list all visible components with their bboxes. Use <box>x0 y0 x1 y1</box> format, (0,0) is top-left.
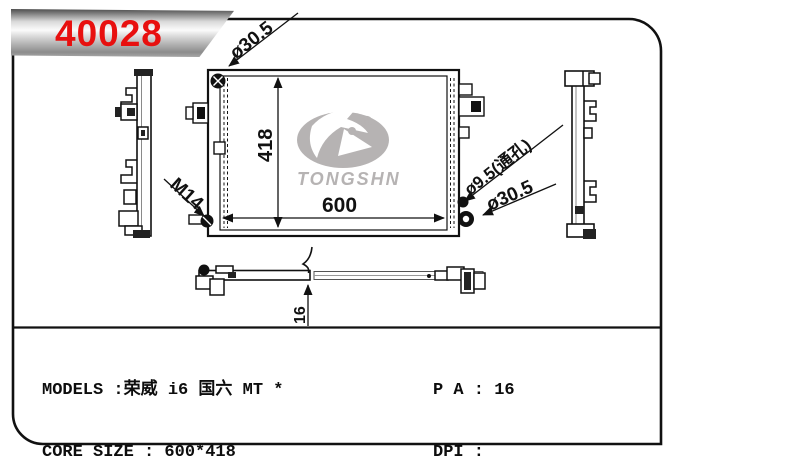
brand-name: TONGSHN <box>297 169 401 189</box>
registered-mark: ® <box>361 114 373 131</box>
top-down-view <box>196 247 485 295</box>
dim-core-height: 418 <box>255 129 277 162</box>
spec-core-size: CORE SIZE : 600*418 <box>42 441 283 463</box>
mount-hole <box>458 197 469 208</box>
side-view-right <box>565 71 600 239</box>
right-brackets <box>459 84 484 138</box>
drain-plug <box>189 215 214 228</box>
outlet-pipe <box>458 211 474 227</box>
part-number-banner: 40028 <box>11 9 234 57</box>
dim-filler-diameter: ø30.5 <box>226 17 278 64</box>
spec-models: MODELS :荣威 i6 国六 MT * <box>42 379 283 403</box>
catalog-page: ® TONGSHN <box>0 0 808 463</box>
dim-drain-thread: M14 <box>166 174 208 215</box>
spec-pa: P A : 16 <box>433 379 566 403</box>
filler-neck <box>211 74 226 89</box>
dim-core-width: 600 <box>322 194 357 217</box>
side-view-left <box>115 69 153 238</box>
spec-dpi: DPI : <box>433 441 566 463</box>
dim-core-thickness: 16 <box>292 306 309 324</box>
spec-block-left: MODELS :荣威 i6 国六 MT * CORE SIZE : 600*41… <box>42 341 283 463</box>
part-number: 40028 <box>11 9 234 59</box>
spec-block-right: P A : 16 DPI : OEM :10455014 NISSENS: <box>433 341 566 463</box>
